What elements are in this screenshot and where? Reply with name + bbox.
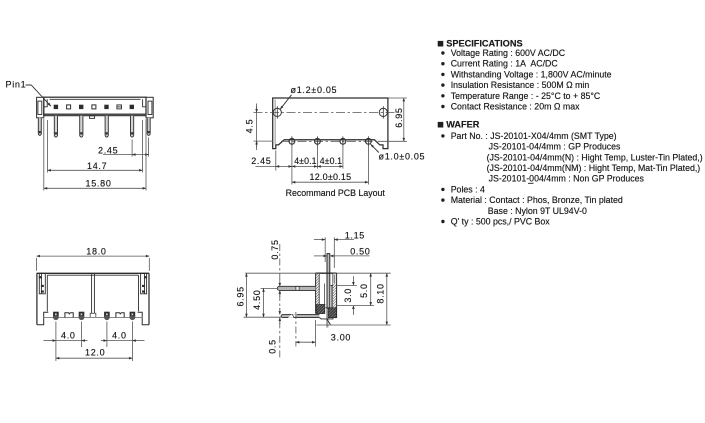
svg-text:Withstanding Voltage : 1,800V: Withstanding Voltage : 1,800V AC/minute xyxy=(451,69,612,79)
svg-text:WAFER: WAFER xyxy=(446,120,480,130)
svg-text:0.75: 0.75 xyxy=(270,239,280,259)
svg-text:14.7: 14.7 xyxy=(87,161,107,171)
svg-text:5.0: 5.0 xyxy=(359,283,369,298)
svg-text:(JS-20101-04/4mm(NM) : Hight T: (JS-20101-04/4mm(NM) : Hight Temp, Mat-T… xyxy=(487,163,701,173)
svg-text:Current Rating : 1A AC/DC: Current Rating : 1A AC/DC xyxy=(451,59,559,69)
svg-text:18.0: 18.0 xyxy=(86,246,106,256)
svg-text:4.0: 4.0 xyxy=(61,331,76,341)
svg-text:ø1.2±0.05: ø1.2±0.05 xyxy=(291,85,338,95)
svg-text:JS-20101-004/4mm : Non GP Prod: JS-20101-004/4mm : Non GP Produces xyxy=(489,174,645,184)
svg-text:Part No. : JS-20101-X04/4mm (S: Part No. : JS-20101-X04/4mm (SMT Type) xyxy=(451,131,617,141)
svg-text:0.5: 0.5 xyxy=(267,339,277,354)
svg-text:Voltage Rating : 600V AC/DC: Voltage Rating : 600V AC/DC xyxy=(451,48,566,58)
svg-text:12.0: 12.0 xyxy=(85,348,105,358)
svg-text:6.95: 6.95 xyxy=(235,286,245,306)
svg-text:Material : Contact : Phos, Bro: Material : Contact : Phos, Bronze, Tin p… xyxy=(451,195,623,205)
svg-text:8.10: 8.10 xyxy=(375,283,385,303)
svg-text:2.45: 2.45 xyxy=(251,156,271,166)
svg-text:1.15: 1.15 xyxy=(345,230,365,240)
svg-text:3.0: 3.0 xyxy=(343,288,353,303)
svg-text:Insulation Resistance : 500M Ω: Insulation Resistance : 500M Ω min xyxy=(451,80,590,90)
svg-text:15.80: 15.80 xyxy=(86,178,112,188)
svg-text:Base : Nylon 9T UL94V-0: Base : Nylon 9T UL94V-0 xyxy=(488,206,587,216)
svg-text:4±0.1: 4±0.1 xyxy=(294,156,316,166)
svg-text:4±0.1: 4±0.1 xyxy=(320,156,342,166)
svg-text:4.5: 4.5 xyxy=(245,119,255,134)
svg-text:(JS-20101-04/4mm(N) : Hight Te: (JS-20101-04/4mm(N) : Hight Temp, Luster… xyxy=(487,152,703,162)
svg-text:ø1.0±0.05: ø1.0±0.05 xyxy=(379,151,426,161)
svg-text:Temperature Range : - 25°C to: Temperature Range : - 25°C to + 85°C xyxy=(451,91,601,101)
svg-text:JS-20101-04/4mm : GP Produces: JS-20101-04/4mm : GP Produces xyxy=(489,142,621,152)
svg-text:Recommand PCB Layout: Recommand PCB Layout xyxy=(286,188,386,198)
svg-text:0.50: 0.50 xyxy=(350,246,370,256)
svg-text:Contact Resistance : 20m Ω ma: Contact Resistance : 20m Ω max xyxy=(451,102,580,112)
svg-text:4.0: 4.0 xyxy=(112,331,127,341)
svg-text:6.95: 6.95 xyxy=(394,107,404,127)
svg-text:2.45: 2.45 xyxy=(98,145,118,155)
svg-text:4.50: 4.50 xyxy=(252,289,262,309)
svg-text:Pin1: Pin1 xyxy=(6,80,27,90)
svg-text:Q' ty : 500 pcs,/ PVC Box: Q' ty : 500 pcs,/ PVC Box xyxy=(451,217,551,227)
svg-text:3.00: 3.00 xyxy=(331,332,351,342)
svg-text:Poles : 4: Poles : 4 xyxy=(451,184,485,194)
svg-text:12.0±0.15: 12.0±0.15 xyxy=(310,172,352,182)
